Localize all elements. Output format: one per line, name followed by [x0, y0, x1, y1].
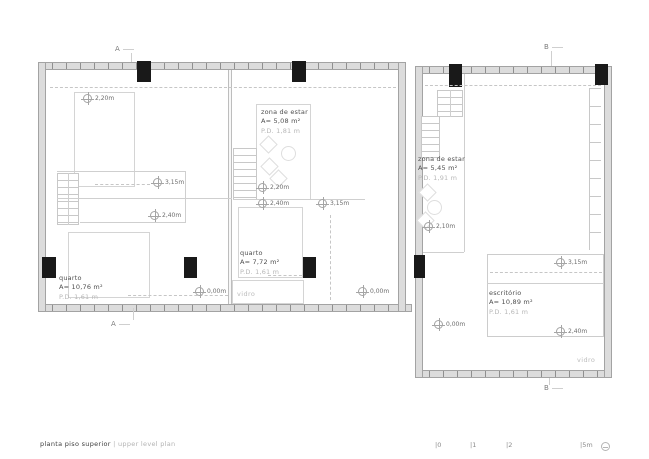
partition-line	[423, 252, 464, 253]
room-name: quarto	[59, 274, 103, 283]
level-target-icon	[153, 178, 162, 187]
level-marker: 3,15m	[556, 258, 587, 267]
room-name: zona de estar	[261, 108, 308, 117]
column	[414, 255, 425, 278]
level-target-icon	[556, 258, 565, 267]
section-marker-b-top: B	[544, 43, 563, 51]
stair-divider-line	[450, 90, 451, 117]
exterior-wall-mid-right	[398, 62, 406, 312]
room-label-zona-estar-right: zona de estar A= 5,45 m² P.D. 1,91 m	[418, 155, 465, 183]
level-value: 2,20m	[95, 95, 114, 102]
scale-tick-1: |1	[470, 441, 476, 449]
level-target-icon	[318, 199, 327, 208]
level-marker: 3,15m	[153, 178, 184, 187]
scale-tick-5m: |5m	[580, 441, 593, 449]
partition-line	[185, 171, 186, 223]
glass-label: vidro	[237, 290, 255, 298]
column	[303, 257, 316, 278]
room-name: quarto	[240, 249, 279, 258]
level-value: 0,00m	[370, 288, 389, 295]
level-marker: 2,40m	[556, 327, 587, 336]
room-area: A= 7,72 m²	[240, 258, 279, 267]
room-name: zona de estar	[418, 155, 465, 164]
partition-line	[487, 283, 604, 284]
section-tick	[119, 324, 130, 325]
level-marker: 0,00m	[434, 320, 465, 329]
partition-line	[57, 198, 232, 199]
level-target-icon	[83, 94, 92, 103]
room-ceiling-height: P.D. 1,61 m	[240, 268, 279, 277]
level-target-icon	[195, 287, 204, 296]
level-marker: 2,20m	[83, 94, 114, 103]
level-value: 2,40m	[162, 212, 181, 219]
section-tick	[552, 388, 563, 389]
level-target-icon	[556, 327, 565, 336]
exterior-wall-bottom-right	[415, 370, 612, 378]
level-marker: 2,40m	[150, 211, 181, 220]
level-target-icon	[424, 222, 433, 231]
column	[292, 61, 306, 82]
room-label-zona-estar-mid: zona de estar A= 5,08 m² P.D. 1,81 m	[261, 108, 308, 136]
level-target-icon	[434, 320, 443, 329]
section-marker-a-top: A	[115, 45, 134, 53]
drawing-title-divider: |	[113, 440, 116, 448]
section-marker-b-bottom: B	[544, 384, 563, 392]
section-line	[133, 308, 134, 320]
column	[595, 64, 608, 85]
level-value: 2,20m	[270, 184, 289, 191]
room-ceiling-height: P.D. 1,61 m	[59, 293, 103, 302]
column	[449, 64, 462, 87]
window-frame-strip	[589, 88, 601, 250]
level-marker: 0,00m	[358, 287, 389, 296]
dashed-guide	[95, 184, 150, 185]
level-target-icon	[150, 211, 159, 220]
level-value: 2,10m	[436, 223, 455, 230]
room-ceiling-height: P.D. 1,91 m	[418, 174, 465, 183]
level-value: 0,00m	[207, 288, 226, 295]
room-name: escritório	[489, 289, 533, 298]
room-area: A= 5,08 m²	[261, 117, 308, 126]
exterior-wall-top-leftmid	[38, 62, 406, 70]
level-value: 0,00m	[446, 321, 465, 328]
room-area: A= 10,89 m²	[489, 298, 533, 307]
dashed-guide	[330, 215, 331, 300]
exterior-wall-bottom-leftmid	[38, 304, 412, 312]
level-value: 3,15m	[330, 200, 349, 207]
column	[137, 61, 151, 82]
drawing-title-en: upper level plan	[118, 440, 175, 448]
column	[42, 257, 56, 278]
table-symbol	[281, 146, 296, 161]
column	[184, 257, 197, 278]
scale-tick-2: |2	[506, 441, 512, 449]
level-marker: 2,10m	[424, 222, 455, 231]
level-value: 3,15m	[568, 259, 587, 266]
level-target-icon	[358, 287, 367, 296]
room-label-quarto-left: quarto A= 10,76 m² P.D. 1,61 m	[59, 274, 103, 302]
partition-line	[57, 171, 185, 172]
table-symbol	[427, 200, 442, 215]
level-marker: 0,00m	[195, 287, 226, 296]
scale-tick-0: |0	[435, 441, 441, 449]
room-ceiling-height: P.D. 1,81 m	[261, 127, 308, 136]
interior-wall-left-mid	[228, 70, 232, 304]
room-ceiling-height: P.D. 1,61 m	[489, 308, 533, 317]
level-target-icon	[258, 199, 267, 208]
stair-divider-line	[68, 173, 69, 225]
staircase	[421, 116, 440, 158]
dashed-guide	[425, 85, 601, 86]
drawing-title: planta piso superior | upper level plan	[40, 440, 175, 448]
north-indicator-icon	[601, 442, 610, 451]
exterior-wall-rightblock-right	[604, 66, 612, 378]
glass-label: vidro	[577, 356, 595, 364]
room-area: A= 10,76 m²	[59, 283, 103, 292]
drawing-title-pt: planta piso superior	[40, 440, 111, 448]
section-letter: A	[111, 320, 116, 328]
staircase	[233, 148, 257, 200]
level-marker: 3,15m	[318, 199, 349, 208]
dashed-guide	[50, 87, 396, 88]
level-value: 3,15m	[165, 179, 184, 186]
section-tick	[123, 49, 134, 50]
room-label-escritorio: escritório A= 10,89 m² P.D. 1,61 m	[489, 289, 533, 317]
section-tick	[552, 47, 563, 48]
dashed-guide	[490, 272, 602, 273]
exterior-wall-top-right	[415, 66, 612, 74]
section-letter: B	[544, 43, 549, 51]
section-marker-a-bottom: A	[111, 320, 130, 328]
section-line	[131, 53, 132, 62]
section-letter: B	[544, 384, 549, 392]
bed-outline	[74, 92, 135, 187]
room-area: A= 5,45 m²	[418, 164, 465, 173]
level-marker: 2,20m	[258, 183, 289, 192]
partition-line	[80, 222, 185, 223]
section-line	[551, 51, 552, 66]
floor-plan-sheet: { "plan": { "rooms": [ {"name": "quarto"…	[0, 0, 649, 459]
level-value: 2,40m	[568, 328, 587, 335]
level-value: 2,40m	[270, 200, 289, 207]
room-label-quarto-mid: quarto A= 7,72 m² P.D. 1,61 m	[240, 249, 279, 277]
section-letter: A	[115, 45, 120, 53]
level-marker: 2,40m	[258, 199, 289, 208]
level-target-icon	[258, 183, 267, 192]
